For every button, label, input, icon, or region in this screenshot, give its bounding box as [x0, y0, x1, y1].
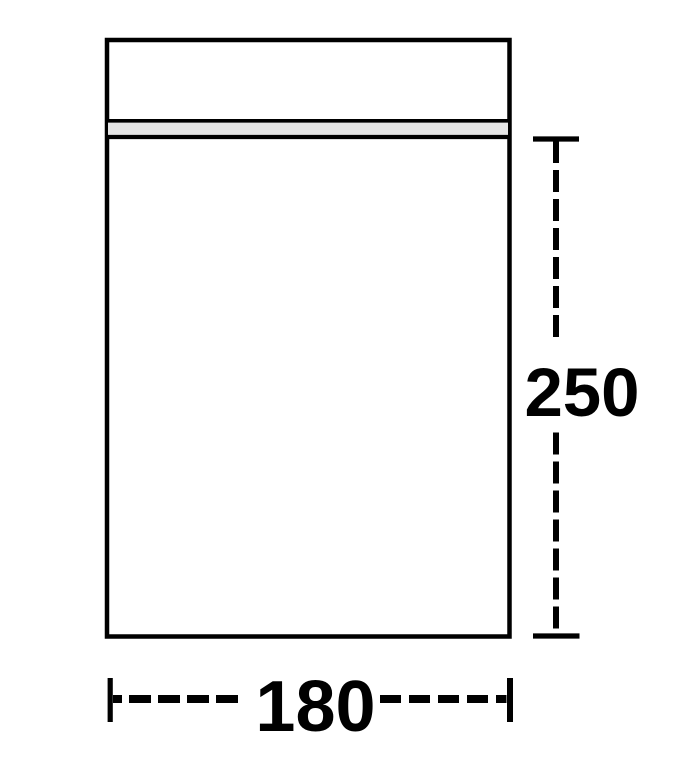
- svg-text:250: 250: [524, 354, 639, 431]
- svg-text:180: 180: [255, 667, 375, 747]
